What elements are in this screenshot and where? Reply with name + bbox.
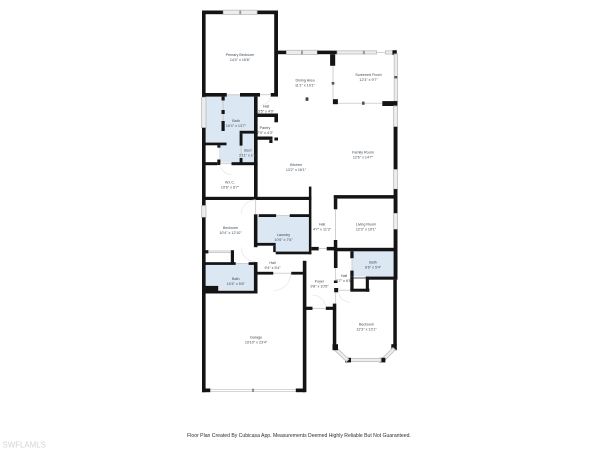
svg-text:Garage: Garage (250, 336, 262, 340)
svg-text:Hall: Hall (269, 261, 276, 265)
svg-text:9'8" x 10'5": 9'8" x 10'5" (310, 284, 329, 288)
svg-text:Living Room: Living Room (356, 223, 377, 227)
svg-text:4'7" x 11'3": 4'7" x 11'3" (313, 227, 332, 231)
svg-text:W.I.C.: W.I.C. (225, 181, 235, 185)
svg-text:Primary Bedroom: Primary Bedroom (226, 53, 255, 57)
svg-text:7'0" x 4'3": 7'0" x 4'3" (257, 131, 274, 135)
svg-text:12'3" x 13'1": 12'3" x 13'1" (356, 327, 377, 331)
svg-text:14'4" x 16'6": 14'4" x 16'6" (230, 58, 251, 62)
svg-text:Family Room: Family Room (352, 151, 374, 155)
svg-text:SWFLAMLS: SWFLAMLS (3, 441, 46, 450)
svg-text:Hall: Hall (263, 105, 270, 109)
svg-text:Bath: Bath (369, 261, 377, 265)
svg-text:Foyer: Foyer (315, 280, 325, 284)
svg-text:Bedroom: Bedroom (359, 323, 374, 327)
svg-text:Hall: Hall (319, 223, 326, 227)
svg-text:Screened Porch: Screened Porch (355, 73, 381, 77)
svg-text:8'6" x 5'4": 8'6" x 5'4" (365, 265, 382, 269)
svg-text:10'4" x 5'6": 10'4" x 5'6" (227, 282, 246, 286)
svg-text:Pantry: Pantry (260, 126, 271, 130)
svg-text:10'4" x 13'7": 10'4" x 13'7" (226, 124, 247, 128)
svg-text:Floor Plan Created By Cubicasa: Floor Plan Created By Cubicasa App. Meas… (187, 433, 411, 439)
svg-text:Hall: Hall (341, 274, 348, 278)
svg-text:10'4" x 12'10": 10'4" x 12'10" (219, 231, 242, 235)
svg-text:Laundry: Laundry (277, 233, 290, 237)
svg-text:19'10" x 23'4": 19'10" x 23'4" (245, 340, 268, 344)
svg-text:Bath: Bath (232, 277, 240, 281)
svg-text:12'6" x 14'7": 12'6" x 14'7" (353, 155, 374, 159)
svg-text:Bath: Bath (232, 119, 240, 123)
svg-text:2'11" x 8'1": 2'11" x 8'1" (239, 153, 258, 157)
svg-text:12'3" x 9'7": 12'3" x 9'7" (359, 78, 378, 82)
svg-text:Kitchen: Kitchen (290, 163, 302, 167)
svg-text:12'3" x 10'1": 12'3" x 10'1" (356, 227, 377, 231)
svg-text:9'4" x 5'4": 9'4" x 5'4" (264, 266, 281, 270)
svg-text:Dining Area: Dining Area (295, 79, 315, 83)
svg-text:10'6" x 6'7": 10'6" x 6'7" (221, 185, 240, 189)
svg-text:3'5" x 4'0": 3'5" x 4'0" (258, 109, 275, 113)
svg-text:Bedroom: Bedroom (223, 226, 238, 230)
svg-text:2'7" x 6'5": 2'7" x 6'5" (336, 279, 353, 283)
svg-text:11'1" x 10'1": 11'1" x 10'1" (295, 83, 316, 87)
svg-text:10'6" x 7'6": 10'6" x 7'6" (274, 238, 293, 242)
svg-text:13'2" x 16'1": 13'2" x 16'1" (286, 168, 307, 172)
